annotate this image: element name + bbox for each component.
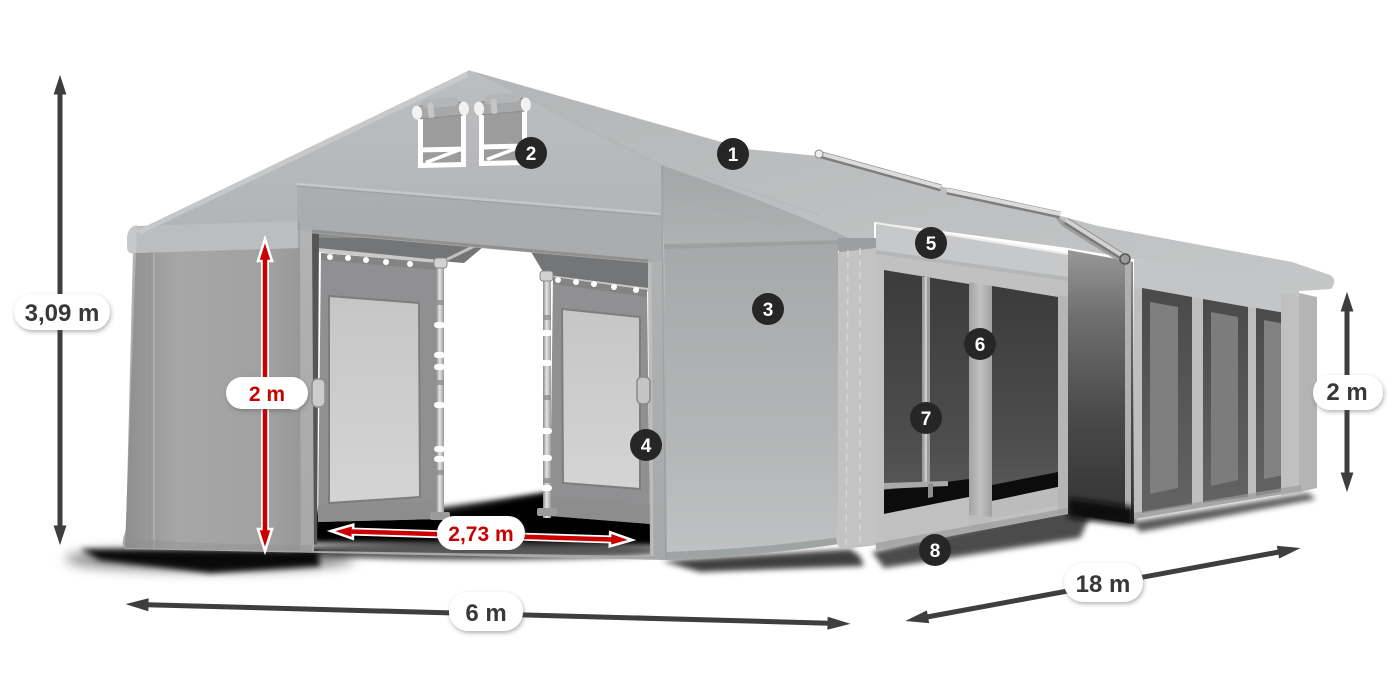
svg-text:2,73 m: 2,73 m (448, 523, 513, 546)
svg-text:1: 1 (728, 145, 739, 166)
svg-text:6 m: 6 m (465, 600, 506, 627)
svg-text:3: 3 (763, 300, 774, 321)
svg-text:4: 4 (641, 436, 652, 457)
svg-text:2 m: 2 m (1326, 379, 1367, 406)
svg-text:3,09 m: 3,09 m (25, 300, 100, 327)
svg-text:6: 6 (975, 335, 986, 356)
svg-text:2 m: 2 m (249, 383, 285, 406)
svg-text:18 m: 18 m (1076, 571, 1131, 598)
svg-text:8: 8 (930, 541, 941, 562)
svg-text:2: 2 (526, 144, 537, 165)
svg-text:5: 5 (926, 234, 937, 255)
svg-text:7: 7 (921, 409, 932, 430)
